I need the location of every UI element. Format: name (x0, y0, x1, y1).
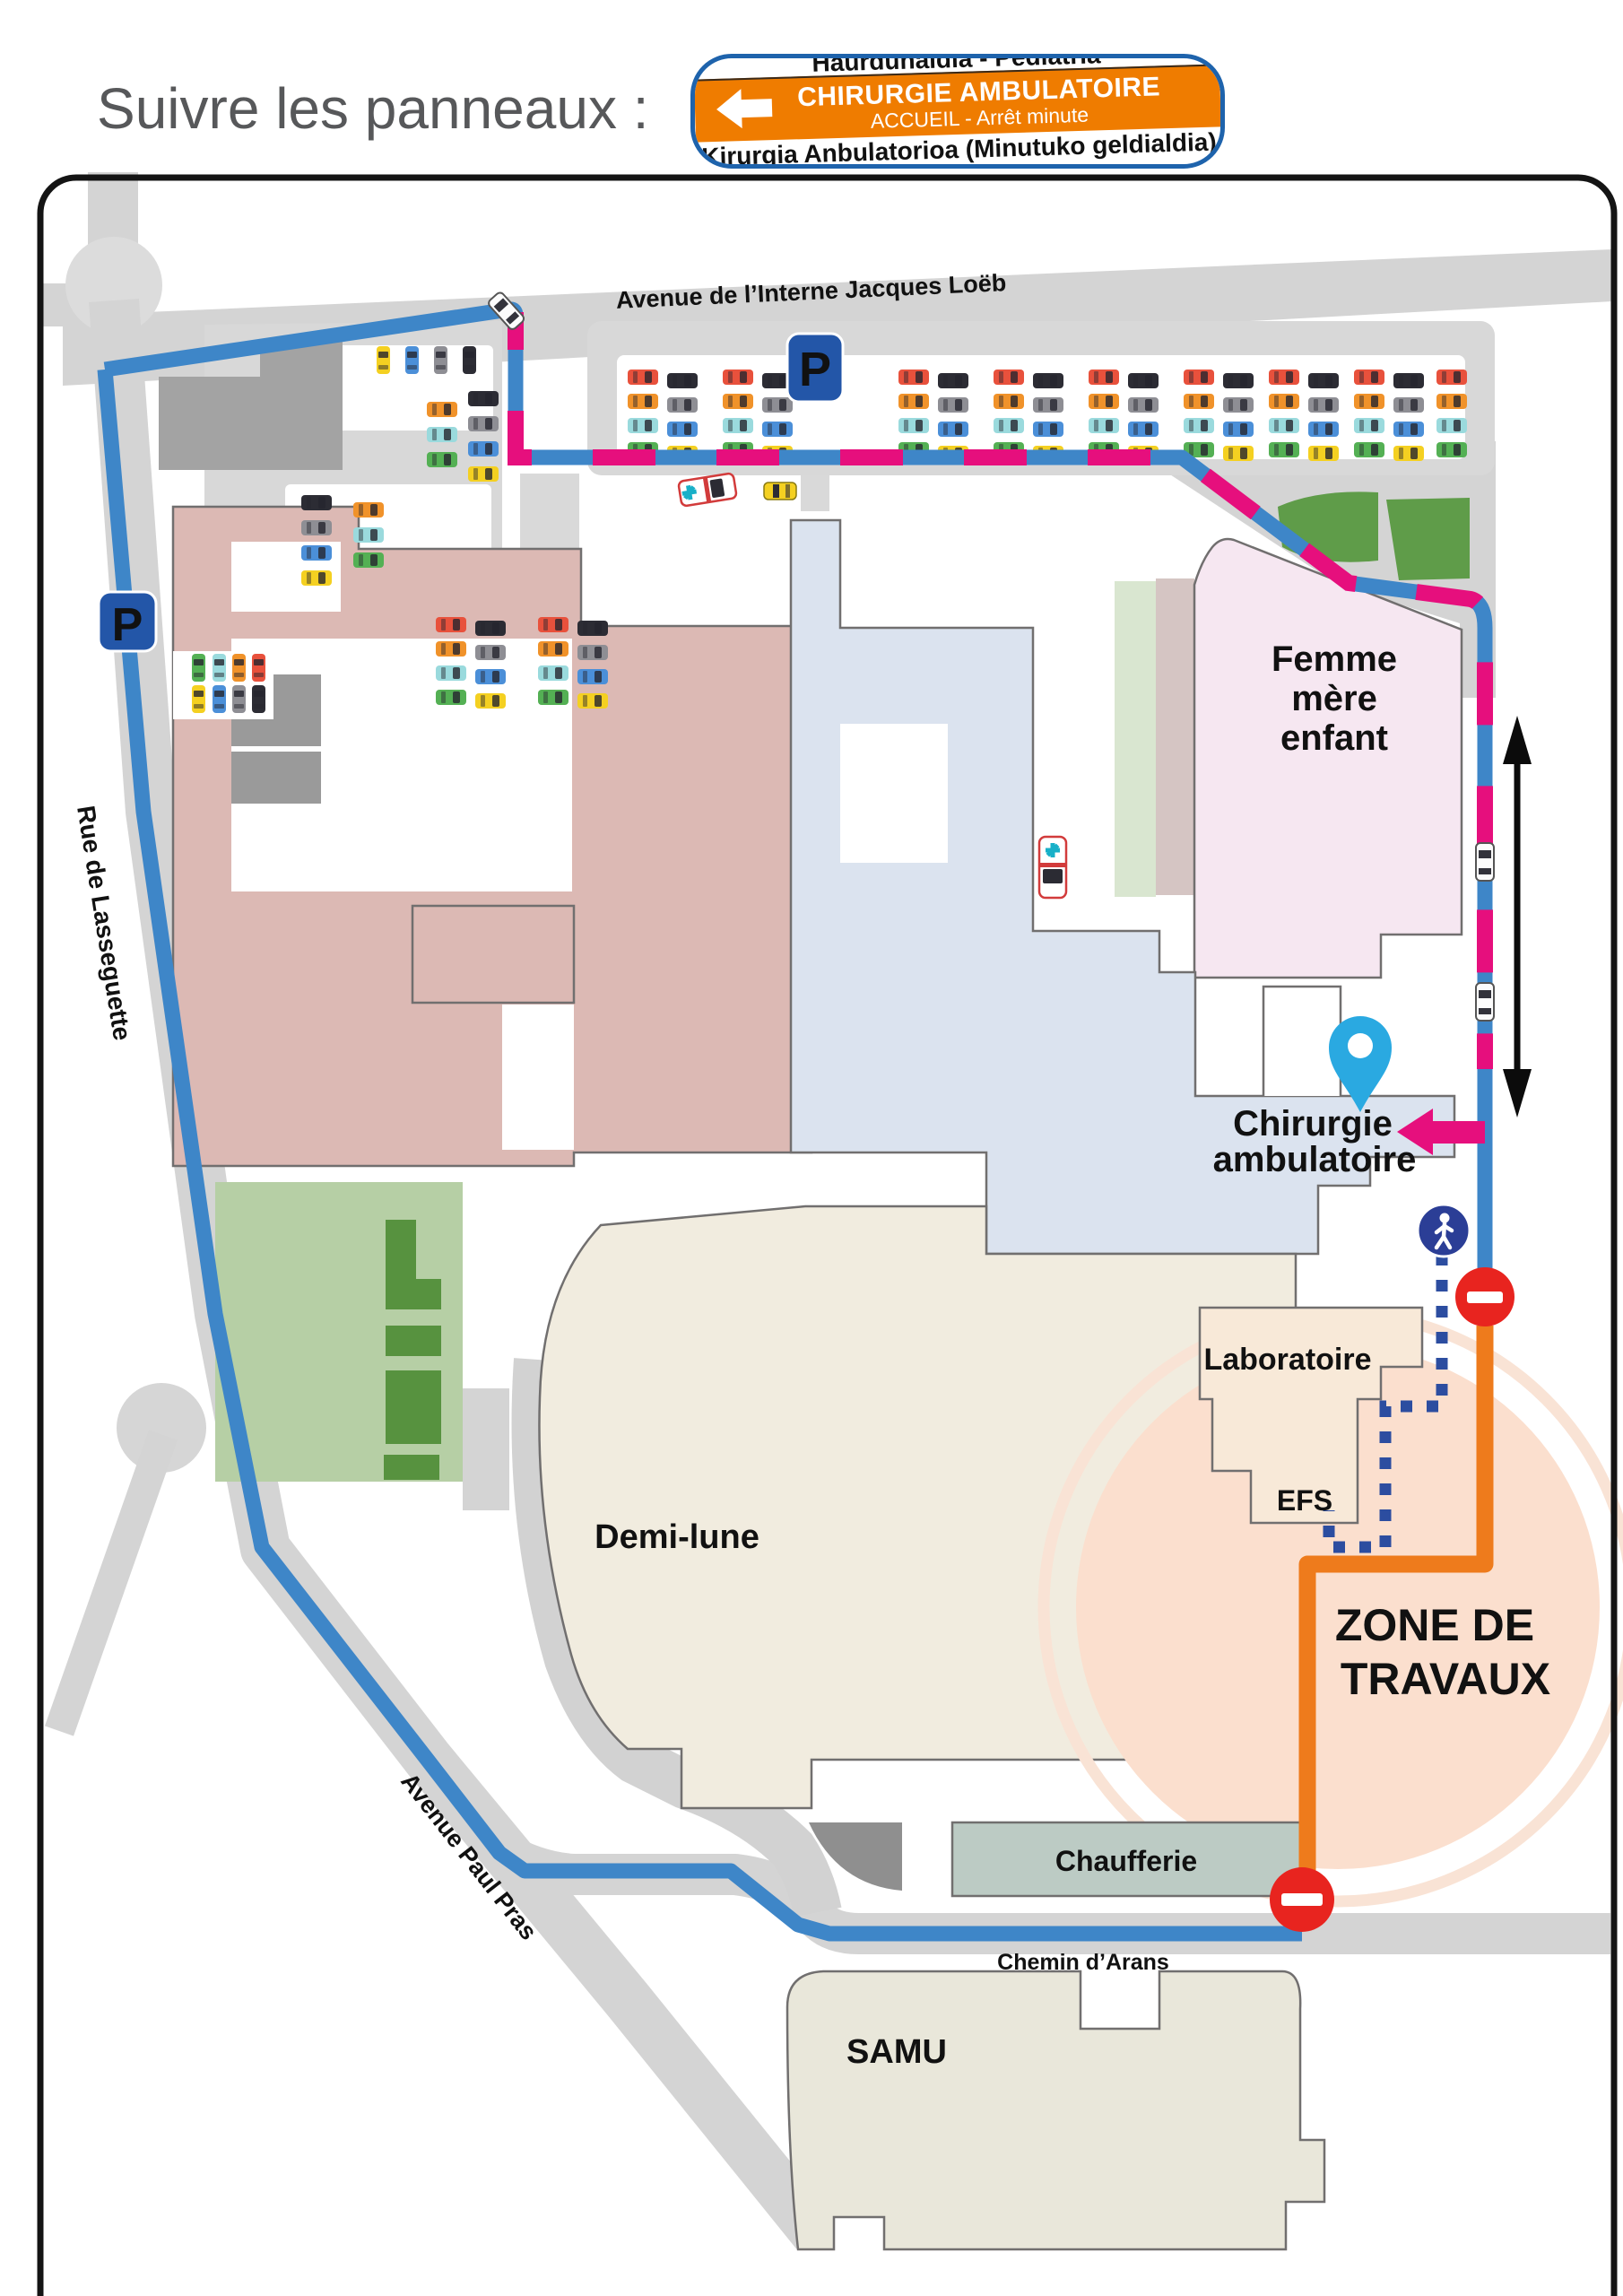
svg-text:TRAVAUX: TRAVAUX (1341, 1654, 1550, 1704)
parked-car (1354, 418, 1384, 433)
parked-car (1269, 370, 1299, 385)
parked-car (723, 394, 753, 409)
parked-car (1393, 397, 1424, 413)
parked-car (427, 427, 457, 442)
parked-car (1128, 422, 1159, 437)
parked-car (1223, 422, 1254, 437)
parked-car (232, 654, 246, 682)
taxi-icon (764, 483, 796, 500)
parked-car (353, 527, 384, 543)
parked-car (898, 394, 929, 409)
parked-car (1436, 370, 1467, 385)
parked-car (405, 346, 419, 374)
chemin-arans-label: Chemin d’Arans (997, 1950, 1169, 1975)
svg-text:P: P (799, 343, 831, 396)
parked-car (1393, 373, 1424, 388)
parked-car (628, 370, 658, 385)
parked-car (436, 641, 466, 657)
parked-car (353, 502, 384, 517)
pedestrian-sign-icon (1418, 1205, 1470, 1257)
parked-car (1308, 373, 1339, 388)
parked-car (1223, 373, 1254, 388)
parked-car (538, 641, 568, 657)
parked-car (994, 370, 1024, 385)
parked-car (475, 669, 506, 684)
buildings (159, 341, 1623, 2249)
parked-car (667, 397, 698, 413)
parked-car (468, 441, 499, 457)
parked-car (232, 685, 246, 713)
parked-car (1354, 370, 1384, 385)
parked-car (1223, 446, 1254, 461)
parked-car (427, 452, 457, 467)
parked-car (1033, 373, 1063, 388)
parked-car (1269, 394, 1299, 409)
svg-text:Demi-lune: Demi-lune (595, 1518, 759, 1556)
svg-text:Femme: Femme (1271, 639, 1397, 679)
parked-car (994, 418, 1024, 433)
parked-car (667, 422, 698, 437)
parked-car (762, 422, 793, 437)
no-entry-icon (1270, 1867, 1334, 1932)
parked-car (475, 645, 506, 660)
inner-court-building (412, 906, 574, 1003)
parked-car (1223, 397, 1254, 413)
parked-car (1184, 394, 1214, 409)
parked-car (723, 370, 753, 385)
parked-car (1393, 446, 1424, 461)
parked-car (898, 370, 929, 385)
parked-car (1269, 442, 1299, 457)
parked-car (938, 373, 968, 388)
parked-car (468, 416, 499, 431)
svg-text:SAMU: SAMU (846, 2033, 947, 2071)
parked-car (213, 654, 226, 682)
parked-car (1308, 422, 1339, 437)
ambulance-icon (678, 473, 737, 506)
parked-car (1354, 394, 1384, 409)
parked-car (252, 654, 265, 682)
car-icon (1476, 843, 1494, 881)
parked-car (192, 654, 205, 682)
svg-text:EFS: EFS (1277, 1484, 1332, 1517)
parked-car (1436, 442, 1467, 457)
parked-car (463, 346, 476, 374)
campus-map: P P Avenue de l’Interne Jacques Loëb Rue… (0, 0, 1623, 2296)
svg-text:Chirurgie: Chirurgie (1233, 1104, 1393, 1144)
parked-car (1089, 418, 1119, 433)
svg-text:Chaufferie: Chaufferie (1055, 1845, 1197, 1877)
parked-car (377, 346, 390, 374)
poster-page: Suivre les panneaux : Haurdunaldia - Ped… (0, 0, 1623, 2296)
parked-car (301, 520, 332, 535)
parked-car (577, 621, 608, 636)
parked-car (938, 397, 968, 413)
parked-car (994, 394, 1024, 409)
parked-car (1033, 397, 1063, 413)
parked-car (301, 570, 332, 586)
parked-car (436, 617, 466, 632)
parked-car (434, 346, 447, 374)
parked-car (427, 402, 457, 417)
svg-text:ZONE DE: ZONE DE (1335, 1600, 1534, 1650)
car-icon (1476, 983, 1494, 1021)
parked-car (762, 397, 793, 413)
parked-car (723, 418, 753, 433)
svg-text:Laboratoire: Laboratoire (1203, 1343, 1371, 1377)
parked-car (1354, 442, 1384, 457)
parked-car (577, 645, 608, 660)
parked-car (252, 685, 265, 713)
parked-car (1184, 418, 1214, 433)
parked-car (628, 418, 658, 433)
parked-car (898, 418, 929, 433)
parked-car (1089, 394, 1119, 409)
svg-text:enfant: enfant (1280, 718, 1388, 758)
svg-text:mère: mère (1291, 679, 1377, 718)
parked-car (1269, 418, 1299, 433)
parked-car (468, 391, 499, 406)
parked-car (353, 552, 384, 568)
parked-car (301, 545, 332, 561)
parked-car (1436, 394, 1467, 409)
parked-car (436, 665, 466, 681)
rue-lasseguette-label: Rue de Lasseguette (72, 804, 136, 1042)
parked-car (538, 617, 568, 632)
parked-car (436, 690, 466, 705)
parked-car (628, 394, 658, 409)
parked-car (475, 621, 506, 636)
parked-car (213, 685, 226, 713)
parked-car (1128, 373, 1159, 388)
ambulance-icon (1039, 837, 1066, 898)
parked-car (192, 685, 205, 713)
no-entry-icon (1455, 1267, 1515, 1326)
parked-car (468, 466, 499, 482)
parked-car (667, 373, 698, 388)
double-arrow-icon (1503, 716, 1532, 1118)
parked-car (1184, 370, 1214, 385)
parking-sign-icon: P (787, 334, 843, 402)
parked-car (538, 690, 568, 705)
parked-car (1436, 418, 1467, 433)
parked-car (1308, 446, 1339, 461)
parked-car (938, 422, 968, 437)
parked-car (577, 693, 608, 709)
parked-car (577, 669, 608, 684)
svg-text:ambulatoire: ambulatoire (1213, 1140, 1417, 1179)
parked-car (475, 693, 506, 709)
parked-car (1128, 397, 1159, 413)
parked-car (1089, 370, 1119, 385)
parked-car (538, 665, 568, 681)
parked-car (1308, 397, 1339, 413)
parking-sign-icon: P (99, 592, 156, 651)
parked-car (301, 495, 332, 510)
samu-building (787, 1971, 1324, 2249)
parked-car (1393, 422, 1424, 437)
parked-car (1033, 422, 1063, 437)
svg-text:P: P (112, 599, 143, 651)
